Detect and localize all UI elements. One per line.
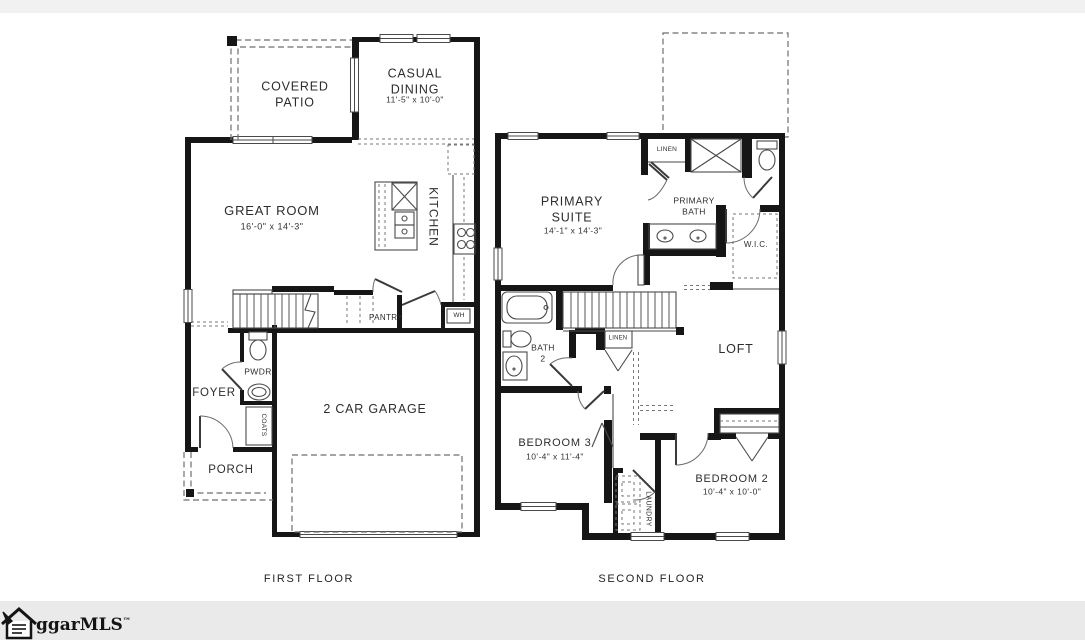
garage-entry-door xyxy=(402,291,435,305)
room-dims-bedroom2: 10'-4" x 10'-0" xyxy=(703,487,761,498)
room-label-water-heater: WH xyxy=(453,312,464,320)
caption-first-floor: FIRST FLOOR xyxy=(264,573,354,587)
mls-watermark-brand: ggarMLS xyxy=(36,615,123,635)
laundry-appliances xyxy=(616,476,640,530)
room-label-powder: PWDR xyxy=(244,367,272,378)
caption-second-floor: SECOND FLOOR xyxy=(598,573,705,587)
room-label-linen-upper: LINEN xyxy=(657,146,677,154)
room-dims-bedroom3: 10'-4" x 11'-4" xyxy=(526,452,584,463)
room-label-primary-bath: PRIMARY BATH xyxy=(673,195,714,216)
pantry-door xyxy=(375,279,402,292)
second-floor-plan xyxy=(494,33,788,541)
primary-bath-door xyxy=(649,164,667,180)
bath2-door xyxy=(550,364,572,386)
room-label-bath2: BATH 2 xyxy=(531,342,555,363)
powder-toilet-bowl xyxy=(250,340,266,360)
primary-suite-door xyxy=(638,255,644,285)
primary-vanity xyxy=(649,224,716,249)
shower xyxy=(691,139,741,172)
room-label-porch: PORCH xyxy=(208,463,254,477)
primary-toilet xyxy=(757,141,777,170)
washer xyxy=(616,476,640,502)
kitchen-island xyxy=(375,182,417,250)
stair-break-symbol xyxy=(305,294,315,328)
island-sink-bowl-2 xyxy=(395,225,414,238)
room-label-loft: LOFT xyxy=(718,342,753,358)
dryer xyxy=(616,504,640,530)
room-label-covered-patio: COVERED PATIO xyxy=(261,79,328,110)
powder-sink xyxy=(248,384,270,400)
powder-toilet-tank xyxy=(249,332,267,340)
room-label-kitchen: KITCHEN xyxy=(426,187,441,247)
first-floor-doors xyxy=(200,279,441,448)
room-label-wic: W.I.C. xyxy=(744,240,768,250)
room-label-pantry: PANTRY xyxy=(369,313,403,323)
porch-post xyxy=(186,489,194,497)
bath2-fixtures xyxy=(502,292,552,380)
kitchen-counter xyxy=(448,145,475,302)
room-dims-primary-suite: 14'-1" x 14'-3" xyxy=(544,226,602,237)
mls-watermark: ggarMLS™ xyxy=(36,615,131,635)
second-floor-stairs xyxy=(563,286,710,336)
hall-corridor-door xyxy=(592,423,602,447)
bath2-toilet-bowl xyxy=(511,331,531,347)
first-floor-stairs xyxy=(233,290,318,328)
room-label-great-room: GREAT ROOM xyxy=(224,203,320,219)
room-dims-casual-dining: 11'-5" x 10'-0" xyxy=(386,95,444,106)
bath2-toilet-tank xyxy=(503,331,511,347)
bedroom3-door xyxy=(585,391,604,409)
room-dims-great-room: 16'-0" x 14'-3" xyxy=(241,221,304,232)
mls-house-icon xyxy=(2,609,36,638)
room-label-laundry: LAUNDRY xyxy=(643,491,652,526)
room-label-garage: 2 CAR GARAGE xyxy=(323,402,426,418)
primary-toilet-door xyxy=(753,177,772,198)
room-label-bedroom2: BEDROOM 2 xyxy=(695,473,768,487)
floorplan-drawing xyxy=(0,0,1085,640)
mls-watermark-tm: ™ xyxy=(123,615,131,625)
room-label-linen-hall: LINEN xyxy=(609,335,628,343)
laundry-door xyxy=(633,470,655,492)
patio-post xyxy=(227,36,237,46)
refrigerator xyxy=(448,145,474,174)
room-label-foyer: FOYER xyxy=(192,386,236,400)
room-label-bedroom3: BEDROOM 3 xyxy=(518,437,591,451)
hall-chase-lines xyxy=(613,352,676,468)
room-label-primary-suite: PRIMARY SUITE xyxy=(541,194,603,225)
roof-below-outline xyxy=(663,33,788,137)
room-label-coats: COATS xyxy=(259,414,267,437)
newel-post xyxy=(676,327,684,335)
island-sink-bowl-1 xyxy=(395,212,414,225)
garage-door-outline xyxy=(292,455,462,532)
floorplan-page: COVERED PATIO CASUAL DINING 11'-5" x 10'… xyxy=(0,0,1085,640)
room-label-casual-dining: CASUAL DINING xyxy=(388,66,443,97)
